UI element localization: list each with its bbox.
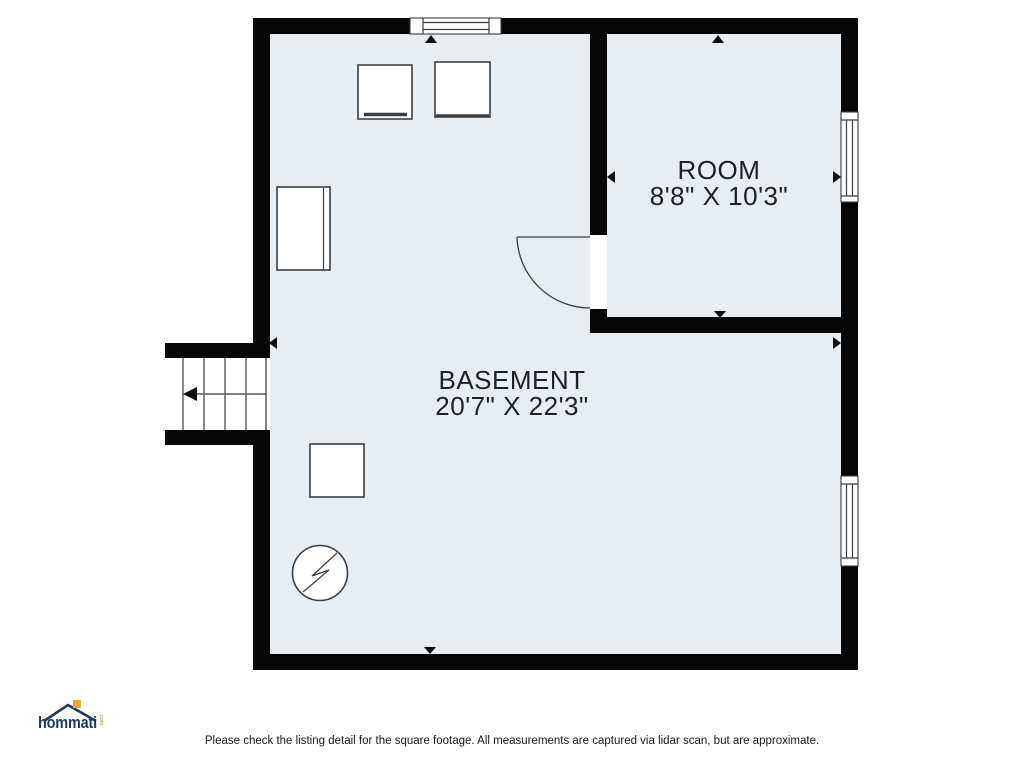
- basement-floor-area: [270, 34, 841, 654]
- basement-dimensions: 20'7" X 22'3": [435, 391, 588, 421]
- logo-wordmark: hommati: [38, 713, 97, 732]
- logo-chimney-icon: [73, 700, 81, 708]
- wall-bottom: [253, 654, 858, 670]
- room-wall-bottom: [590, 317, 841, 333]
- door-opening: [590, 235, 607, 309]
- room-wall-left-upper: [590, 34, 607, 235]
- window-right-lower-icon: [841, 476, 858, 566]
- storage-box: [310, 444, 364, 497]
- window-top-icon: [410, 18, 501, 34]
- stairwell: [165, 343, 270, 445]
- stair-wall-bottom: [165, 430, 270, 445]
- appliance-right: [435, 62, 490, 117]
- water-heater-icon: [293, 546, 348, 601]
- room-dimensions: 8'8" X 10'3": [650, 181, 788, 211]
- floor-plan-canvas: ROOM 8'8" X 10'3" BASEMENT 20'7" X 22'3"…: [0, 0, 1024, 768]
- wall-left-upper: [253, 18, 270, 358]
- cabinet: [277, 187, 330, 270]
- wall-left-lower: [253, 430, 270, 670]
- floor-plan-page: ROOM 8'8" X 10'3" BASEMENT 20'7" X 22'3"…: [0, 0, 1024, 768]
- hommati-logo: hommati com: [38, 700, 104, 732]
- window-right-upper-icon: [841, 112, 858, 202]
- appliance-left: [358, 65, 412, 119]
- wall-top: [253, 18, 858, 34]
- stair-wall-top: [165, 343, 270, 358]
- disclaimer-text: Please check the listing detail for the …: [0, 735, 1024, 747]
- logo-suffix: com: [98, 715, 104, 726]
